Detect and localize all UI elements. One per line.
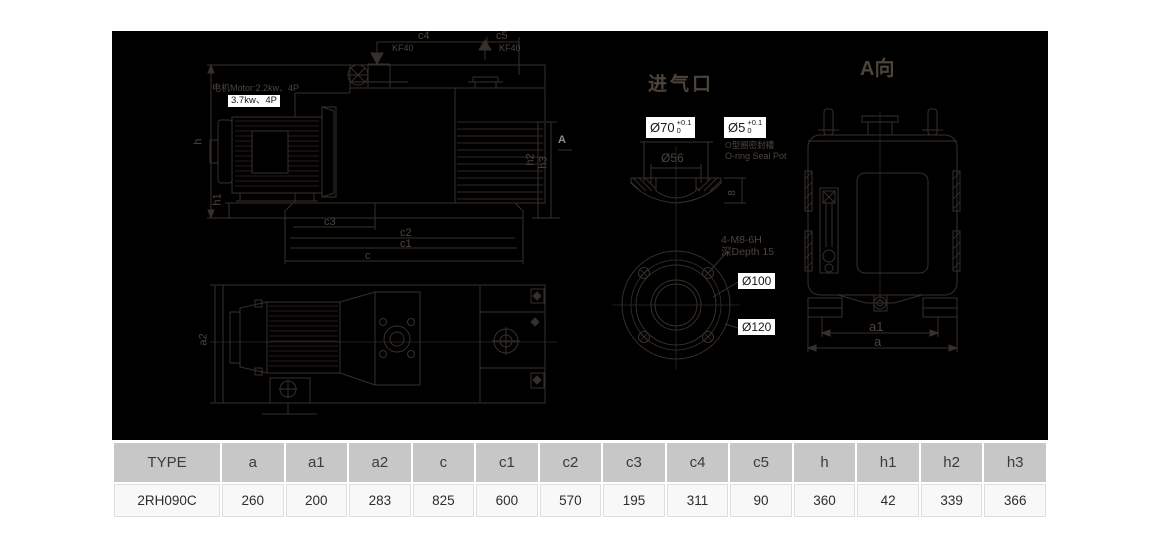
pump-dimension-sheet: 电机Motor:2.2kw、4P 3.7kw、4P KF40 KF40 c4 c… xyxy=(0,0,1160,550)
oring-groove-en-label: O-ring Seal Pot xyxy=(725,152,787,161)
value-a1: 200 xyxy=(286,484,348,517)
dim-h3-label: h3 xyxy=(539,156,550,168)
dim-h1-label: h1 xyxy=(213,193,224,205)
technical-drawing-area: 电机Motor:2.2kw、4P 3.7kw、4P KF40 KF40 c4 c… xyxy=(112,31,1048,440)
value-h2: 339 xyxy=(921,484,983,517)
value-h1: 42 xyxy=(857,484,919,517)
view-a-arrow-marker: A xyxy=(558,135,566,146)
col-header-h: h xyxy=(794,443,856,482)
oring-groove-cn-label: O型圈密封槽 xyxy=(725,141,774,150)
motor-spec-label: 电机Motor:2.2kw、4P xyxy=(212,84,299,93)
kf40-right-label: KF40 xyxy=(499,44,521,53)
dia70-value: Ø70 xyxy=(650,121,675,134)
dim-c-label: c xyxy=(365,251,371,262)
value-a2: 283 xyxy=(349,484,411,517)
view-a-title: A向 xyxy=(860,59,894,79)
a-view-linework xyxy=(805,109,960,352)
dia70-dimension: Ø70 +0.1 0 xyxy=(646,117,695,138)
value-a: 260 xyxy=(222,484,284,517)
col-header-c2: c2 xyxy=(540,443,602,482)
dim-a1-label: a1 xyxy=(869,320,883,333)
col-header-c4: c4 xyxy=(667,443,729,482)
col-header-c3: c3 xyxy=(603,443,665,482)
dia120-dimension: Ø120 xyxy=(738,319,775,335)
kf40-left-label: KF40 xyxy=(392,44,414,53)
bolt-spec-label: 4-M8-6H xyxy=(721,235,762,246)
groove-depth-8-label: 8 xyxy=(728,190,738,196)
value-h: 360 xyxy=(794,484,856,517)
plan-view-linework xyxy=(210,285,557,414)
col-header-h1: h1 xyxy=(857,443,919,482)
inlet-port-title: 进气口 xyxy=(648,75,714,94)
dim-h2-label: h2 xyxy=(526,153,537,165)
col-header-a: a xyxy=(222,443,284,482)
dim-a-label: a xyxy=(874,335,881,348)
value-c2: 570 xyxy=(540,484,602,517)
value-c4: 311 xyxy=(667,484,729,517)
col-header-c1: c1 xyxy=(476,443,538,482)
col-header-c5: c5 xyxy=(730,443,792,482)
dimension-table-value-row: 2RH090C 260 200 283 825 600 570 195 311 … xyxy=(114,484,1046,517)
value-c: 825 xyxy=(413,484,475,517)
dim-c3-label: c3 xyxy=(324,217,336,228)
value-h3: 366 xyxy=(984,484,1046,517)
value-c5: 90 xyxy=(730,484,792,517)
col-header-a2: a2 xyxy=(349,443,411,482)
value-c3: 195 xyxy=(603,484,665,517)
col-header-h3: h3 xyxy=(984,443,1046,482)
dimension-table: TYPE a a1 a2 c c1 c2 c3 c4 c5 h h1 h2 h3… xyxy=(112,441,1048,519)
dim-c5-label: c5 xyxy=(496,31,508,42)
col-header-type: TYPE xyxy=(114,443,220,482)
dia5-dimension: Ø5 +0.1 0 xyxy=(724,117,766,138)
motor-spec-highlight: 3.7kw、4P xyxy=(228,95,280,107)
col-header-c: c xyxy=(413,443,475,482)
col-header-a1: a1 xyxy=(286,443,348,482)
value-type: 2RH090C xyxy=(114,484,220,517)
col-header-h2: h2 xyxy=(921,443,983,482)
dia5-tolerance: +0.1 0 xyxy=(747,119,762,136)
dia5-value: Ø5 xyxy=(728,121,745,134)
dim-c1-label: c1 xyxy=(400,239,412,250)
dim-c4-label: c4 xyxy=(418,31,430,42)
dia100-dimension: Ø100 xyxy=(738,273,775,289)
bolt-depth-label: 深Depth 15 xyxy=(721,247,774,258)
side-view-linework xyxy=(207,37,572,264)
dim-a2-label: a2 xyxy=(199,333,210,345)
value-c1: 600 xyxy=(476,484,538,517)
dim-h-label: h xyxy=(194,138,205,144)
dimension-table-header-row: TYPE a a1 a2 c c1 c2 c3 c4 c5 h h1 h2 h3 xyxy=(114,443,1046,482)
dia70-tolerance: +0.1 0 xyxy=(677,119,692,136)
dia56-label: Ø56 xyxy=(661,152,684,164)
